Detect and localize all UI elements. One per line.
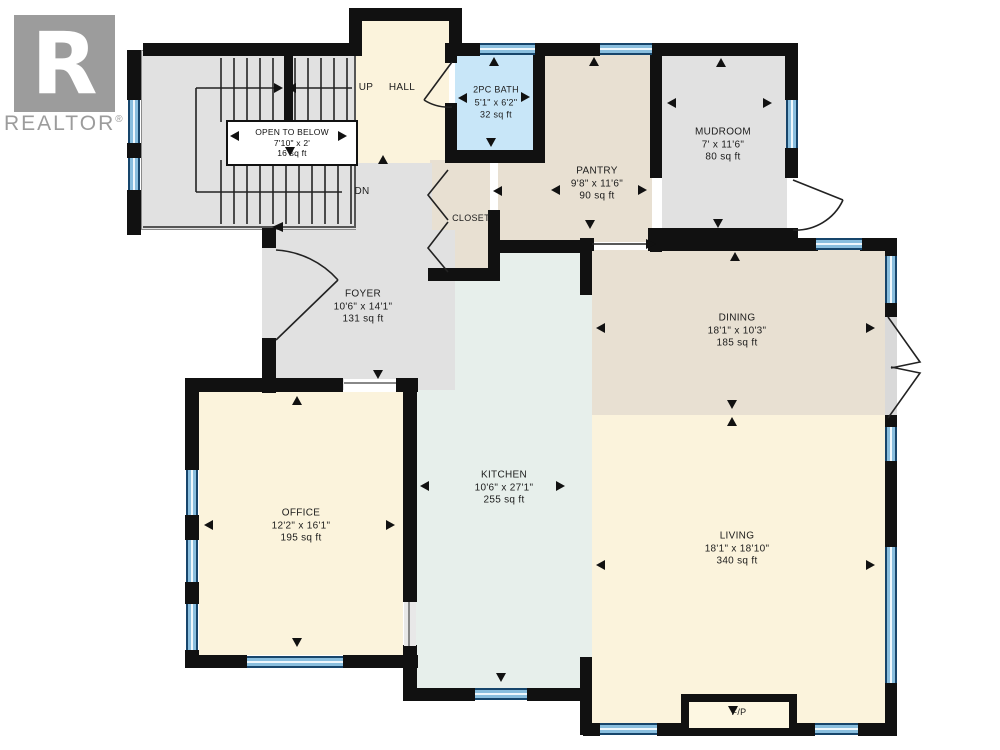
floor-plan: R REALTOR® [0, 0, 1000, 750]
dimension-arrow [486, 138, 496, 147]
dimension-arrow [556, 481, 565, 491]
dimension-arrow [292, 396, 302, 405]
dimension-arrow [763, 98, 772, 108]
bath-label: 2PC BATH5'1" x 6'2"32 sq ft [473, 83, 519, 121]
dining-label: DINING18'1" x 10'3"185 sq ft [708, 312, 767, 350]
dimension-arrow [420, 481, 429, 491]
dimension-arrow [727, 400, 737, 409]
pantry-label: PANTRY9'8" x 11'6"90 sq ft [571, 165, 623, 203]
open-to-below-box: OPEN TO BELOW 7'10" x 2' 16 sq ft [226, 120, 358, 166]
open-to-below-name: OPEN TO BELOW [228, 127, 356, 138]
dimension-arrow [589, 57, 599, 66]
mudroom-door-swing [793, 180, 843, 230]
stairs-down-label: DN [354, 186, 369, 199]
dimension-arrow [285, 147, 295, 156]
dimension-arrow [204, 520, 213, 530]
dimension-arrow [730, 252, 740, 261]
dimension-arrow [866, 560, 875, 570]
dimension-arrow [386, 520, 395, 530]
dimension-arrow [551, 185, 560, 195]
closet-bifold-door [428, 222, 448, 272]
stair-up-arrowhead [274, 83, 283, 93]
stair-edge-arrowhead [272, 222, 283, 232]
dimension-arrow [638, 185, 647, 195]
dimension-arrow [496, 673, 506, 682]
dimension-arrow [585, 220, 595, 229]
dimension-arrow [713, 219, 723, 228]
dimension-arrow [716, 58, 726, 67]
dimension-arrow [866, 323, 875, 333]
front-door-swing [276, 250, 338, 340]
foyer-label: FOYER10'6" x 14'1"131 sq ft [334, 288, 393, 326]
stairs-up-label: UP [359, 82, 374, 95]
living-label: LIVING18'1" x 18'10"340 sq ft [705, 530, 770, 568]
closet-bifold-door [428, 170, 448, 220]
dimension-arrow [493, 186, 502, 196]
dimension-arrow [727, 417, 737, 426]
dimension-arrow [596, 560, 605, 570]
office-label: OFFICE12'2" x 16'1"195 sq ft [272, 507, 331, 545]
dimension-arrow [521, 92, 530, 102]
dimension-arrow [489, 57, 499, 66]
dimension-arrow [230, 131, 239, 141]
french-door-panel [888, 367, 920, 418]
dimension-arrow [728, 706, 738, 715]
dimension-arrow [373, 370, 383, 379]
dimension-arrow [596, 323, 605, 333]
mudroom-label: MUDROOM7' x 11'6"80 sq ft [695, 126, 751, 164]
dimension-arrow [378, 155, 388, 164]
stair-up-arrowhead [287, 83, 296, 93]
bath-door-swing [424, 62, 452, 107]
dimension-arrow [667, 98, 676, 108]
dimension-arrow [458, 93, 467, 103]
dimension-arrow [292, 638, 302, 647]
kitchen-label: KITCHEN10'6" x 27'1"255 sq ft [475, 469, 534, 507]
dining-opening-arrowhead [646, 239, 656, 249]
french-door-panel [888, 317, 920, 368]
closet-label: CLOSET [452, 212, 490, 225]
hall-label: HALL [389, 82, 415, 95]
dimension-arrow [338, 131, 347, 141]
